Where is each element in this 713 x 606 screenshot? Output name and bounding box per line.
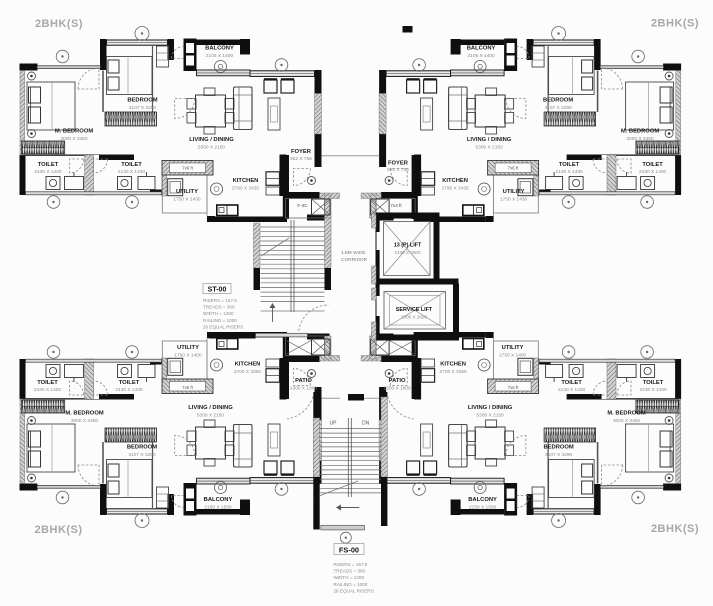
svg-text:5300 X 2150: 5300 X 2150 bbox=[198, 145, 226, 151]
svg-text:2105 X 1400: 2105 X 1400 bbox=[467, 53, 495, 59]
svg-text:3000 X 3450: 3000 X 3450 bbox=[71, 418, 99, 424]
svg-text:FOYER: FOYER bbox=[291, 149, 312, 155]
svg-text:3000 X 3450: 3000 X 3450 bbox=[613, 418, 641, 424]
svg-text:UTILITY: UTILITY bbox=[176, 189, 198, 195]
svg-text:RAILING = 1000: RAILING = 1000 bbox=[203, 318, 237, 323]
svg-text:BEDROOM: BEDROOM bbox=[543, 98, 573, 104]
svg-text:BEDROOM: BEDROOM bbox=[543, 445, 573, 451]
svg-text:2BHK(S): 2BHK(S) bbox=[35, 18, 83, 30]
svg-text:BALCONY: BALCONY bbox=[468, 497, 497, 503]
svg-text:CORRIDOR: CORRIDOR bbox=[341, 257, 368, 263]
svg-text:M. BEDROOM: M. BEDROOM bbox=[621, 129, 659, 135]
svg-text:1750 X 1400: 1750 X 1400 bbox=[174, 353, 202, 359]
svg-text:UTILITY: UTILITY bbox=[502, 345, 524, 351]
svg-text:5300 X 2150: 5300 X 2150 bbox=[476, 413, 504, 419]
svg-text:PATIO: PATIO bbox=[295, 378, 312, 384]
svg-text:3000 X 3450: 3000 X 3450 bbox=[60, 136, 88, 142]
svg-text:5300 X 2150: 5300 X 2150 bbox=[197, 413, 225, 419]
svg-text:TOILET: TOILET bbox=[37, 380, 58, 386]
svg-text:7x6 ft: 7x6 ft bbox=[182, 166, 194, 171]
svg-text:2100 X 2500: 2100 X 2500 bbox=[394, 250, 421, 255]
svg-text:SERVICE LIFT: SERVICE LIFT bbox=[396, 307, 433, 313]
svg-text:KITCHEN: KITCHEN bbox=[233, 178, 259, 184]
svg-text:7x6 ft: 7x6 ft bbox=[182, 385, 194, 390]
svg-text:3107 X 3290: 3107 X 3290 bbox=[544, 105, 572, 111]
svg-text:2BHK(S): 2BHK(S) bbox=[651, 18, 699, 30]
svg-text:PATIO: PATIO bbox=[389, 378, 406, 384]
svg-text:F-4C: F-4C bbox=[297, 203, 308, 208]
svg-text:2150 X 1500: 2150 X 1500 bbox=[469, 505, 497, 511]
svg-text:RAILING = 1000: RAILING = 1000 bbox=[334, 582, 368, 587]
svg-text:TOILET: TOILET bbox=[559, 162, 580, 168]
svg-text:962 X 756: 962 X 756 bbox=[387, 167, 409, 173]
svg-text:M. BEDROOM: M. BEDROOM bbox=[65, 411, 103, 417]
svg-text:M. BEDROOM: M. BEDROOM bbox=[607, 411, 645, 417]
svg-text:962 X 756: 962 X 756 bbox=[290, 156, 312, 162]
svg-text:2790 X 3435: 2790 X 3435 bbox=[232, 186, 260, 192]
svg-text:2790 X 3435: 2790 X 3435 bbox=[441, 186, 469, 192]
svg-text:2105 X 1400: 2105 X 1400 bbox=[206, 53, 234, 59]
svg-text:3107 X 3290: 3107 X 3290 bbox=[128, 452, 156, 458]
svg-text:1750 X 1400: 1750 X 1400 bbox=[499, 353, 527, 359]
svg-text:RISERS = 157.5: RISERS = 157.5 bbox=[203, 298, 237, 303]
svg-text:KITCHEN: KITCHEN bbox=[235, 362, 261, 368]
svg-text:1750 X 1430: 1750 X 1430 bbox=[500, 197, 528, 203]
svg-text:7x4 ft: 7x4 ft bbox=[390, 203, 402, 208]
svg-text:2130 X 1430: 2130 X 1430 bbox=[118, 169, 146, 175]
svg-text:26 EQUAL RISERS: 26 EQUAL RISERS bbox=[203, 324, 243, 329]
svg-text:2430 X 1400: 2430 X 1400 bbox=[34, 387, 62, 393]
svg-text:2130 X 1430: 2130 X 1430 bbox=[555, 169, 583, 175]
svg-text:26 EQUAL RISERS: 26 EQUAL RISERS bbox=[334, 588, 374, 593]
svg-text:1300 X 1800: 1300 X 1800 bbox=[290, 386, 318, 392]
svg-text:TREADS = 300: TREADS = 300 bbox=[334, 569, 366, 574]
svg-text:2700 X 3350: 2700 X 3350 bbox=[234, 369, 262, 375]
svg-text:2150 X 1500: 2150 X 1500 bbox=[204, 505, 232, 511]
svg-text:LIVING / DINING: LIVING / DINING bbox=[188, 405, 233, 411]
svg-text:3107 X 3290: 3107 X 3290 bbox=[545, 452, 573, 458]
svg-text:DN: DN bbox=[362, 421, 370, 427]
svg-text:2430 X 1400: 2430 X 1400 bbox=[34, 169, 62, 175]
svg-text:2700 X 3350: 2700 X 3350 bbox=[439, 369, 467, 375]
svg-text:3000 X 3450: 3000 X 3450 bbox=[626, 136, 654, 142]
svg-text:LIVING / DINING: LIVING / DINING bbox=[189, 137, 234, 143]
svg-text:2BHK(S): 2BHK(S) bbox=[34, 524, 82, 536]
svg-text:TOILET: TOILET bbox=[643, 380, 664, 386]
svg-text:FS-00: FS-00 bbox=[339, 546, 359, 555]
svg-text:2000 X 2600: 2000 X 2600 bbox=[401, 315, 428, 320]
svg-text:WIDTH = 1200: WIDTH = 1200 bbox=[203, 311, 234, 316]
svg-text:1300 X 1800: 1300 X 1800 bbox=[383, 386, 411, 392]
svg-text:RISERS = 157.5: RISERS = 157.5 bbox=[334, 562, 368, 567]
svg-text:UTILITY: UTILITY bbox=[503, 189, 525, 195]
svg-text:2130 X 1430: 2130 X 1430 bbox=[558, 387, 586, 393]
svg-text:LIVING / DINING: LIVING / DINING bbox=[468, 405, 513, 411]
svg-text:TOILET: TOILET bbox=[561, 380, 582, 386]
svg-text:TOILET: TOILET bbox=[38, 162, 59, 168]
svg-text:1750 X 1430: 1750 X 1430 bbox=[173, 197, 201, 203]
svg-text:13 (P) LIFT: 13 (P) LIFT bbox=[394, 243, 422, 249]
svg-text:2430 X 1400: 2430 X 1400 bbox=[639, 387, 667, 393]
svg-text:BALCONY: BALCONY bbox=[204, 497, 233, 503]
svg-text:1.8M WIDE: 1.8M WIDE bbox=[341, 250, 366, 256]
svg-text:BEDROOM: BEDROOM bbox=[127, 98, 157, 104]
svg-text:KITCHEN: KITCHEN bbox=[440, 362, 466, 368]
svg-text:7x6 ft: 7x6 ft bbox=[508, 385, 520, 390]
svg-text:UTILITY: UTILITY bbox=[177, 345, 199, 351]
svg-text:M. BEDROOM: M. BEDROOM bbox=[55, 129, 93, 135]
svg-text:7x6 ft: 7x6 ft bbox=[508, 166, 520, 171]
svg-text:TOILET: TOILET bbox=[642, 162, 663, 168]
svg-text:BEDROOM: BEDROOM bbox=[127, 445, 157, 451]
svg-text:TREADS = 300: TREADS = 300 bbox=[203, 305, 235, 310]
svg-text:UP: UP bbox=[330, 421, 338, 427]
svg-text:FOYER: FOYER bbox=[388, 161, 409, 167]
svg-text:BALCONY: BALCONY bbox=[467, 46, 496, 52]
svg-text:2430 X 1400: 2430 X 1400 bbox=[639, 169, 667, 175]
svg-text:2130 X 1430: 2130 X 1430 bbox=[115, 387, 143, 393]
svg-text:LIVING / DINING: LIVING / DINING bbox=[467, 137, 512, 143]
svg-text:KITCHEN: KITCHEN bbox=[442, 178, 468, 184]
svg-text:TOILET: TOILET bbox=[119, 380, 140, 386]
svg-text:WIDTH = 1200: WIDTH = 1200 bbox=[334, 575, 365, 580]
svg-text:BALCONY: BALCONY bbox=[205, 46, 234, 52]
svg-text:3107 X 3290: 3107 X 3290 bbox=[129, 105, 157, 111]
svg-text:5300 X 2150: 5300 X 2150 bbox=[475, 145, 503, 151]
svg-text:2BHK(S): 2BHK(S) bbox=[651, 523, 699, 535]
svg-text:ST-00: ST-00 bbox=[208, 287, 227, 294]
svg-text:TOILET: TOILET bbox=[121, 162, 142, 168]
